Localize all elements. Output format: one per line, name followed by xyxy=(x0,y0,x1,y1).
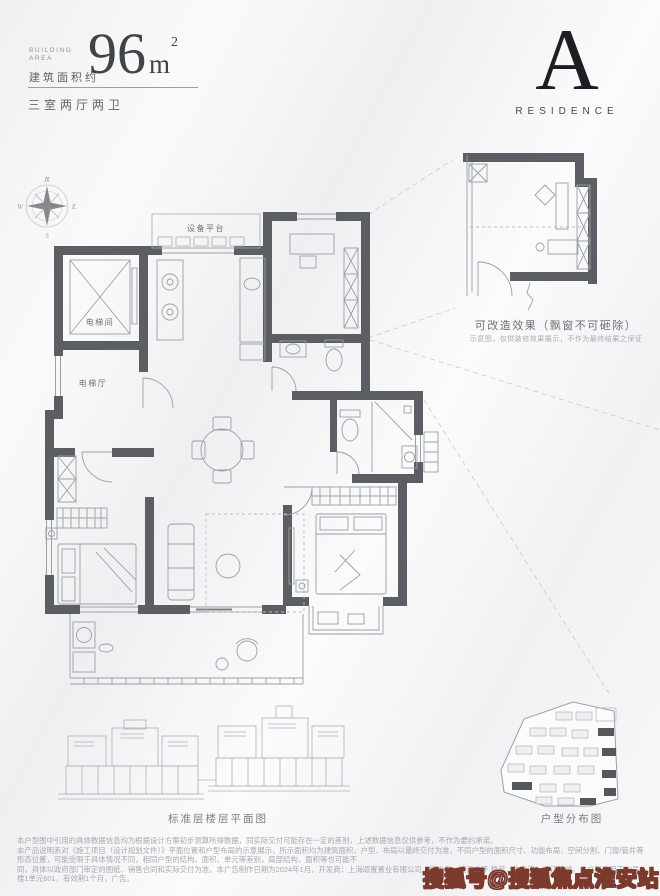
inset-subcaption: 示意图，仅供装修效果展示，不作为最终结果之保证 xyxy=(470,334,643,344)
watermark: 搜狐号@搜狐焦点淮安站 xyxy=(423,863,659,893)
brand-letter: A xyxy=(502,16,632,106)
projection-lines xyxy=(368,160,660,695)
layout-label: 三室两厅两卫 xyxy=(28,96,124,113)
floorplan-poster: N E S W xyxy=(0,0,660,896)
label-elevator-hall: 电梯厅 xyxy=(79,378,108,388)
disclaimer-line-1: 本户型图中引用的具体数据信息均为根据设计方案初步测算所得数据，同实际交付可能存在… xyxy=(17,836,645,846)
brand-word: RESIDENCE xyxy=(502,106,632,117)
compass-n: N xyxy=(44,176,50,184)
inset-plan xyxy=(463,153,597,310)
inset-caption: 可改造效果（飘窗不可砸除） xyxy=(475,317,638,333)
brand-block: A RESIDENCE xyxy=(502,16,632,117)
compass-e: E xyxy=(71,203,77,211)
compass-icon: N E S W xyxy=(17,176,77,240)
building-area-en: BUILDING AREA xyxy=(29,47,73,63)
site-plan xyxy=(501,702,618,806)
area-value: 96m2 xyxy=(88,24,177,84)
elevation-caption: 标准层楼层平面图 xyxy=(168,811,268,826)
label-equipment-platform: 设备平台 xyxy=(187,223,225,233)
siteplan-caption: 户型分布图 xyxy=(541,811,604,826)
label-elevator-room: 电梯间 xyxy=(86,317,115,327)
disclaimer-line-2: 本产品说明系对《施工项目（设计规划文件）》平面位置和户型布局的示意展示，所示面积… xyxy=(17,846,645,865)
compass-w: W xyxy=(17,203,24,211)
compass-s: S xyxy=(45,232,49,240)
header-divider xyxy=(28,87,198,88)
elevation-drawing xyxy=(58,706,350,799)
floorplan-artwork: N E S W xyxy=(0,0,660,896)
main-floor-plan xyxy=(45,212,438,684)
